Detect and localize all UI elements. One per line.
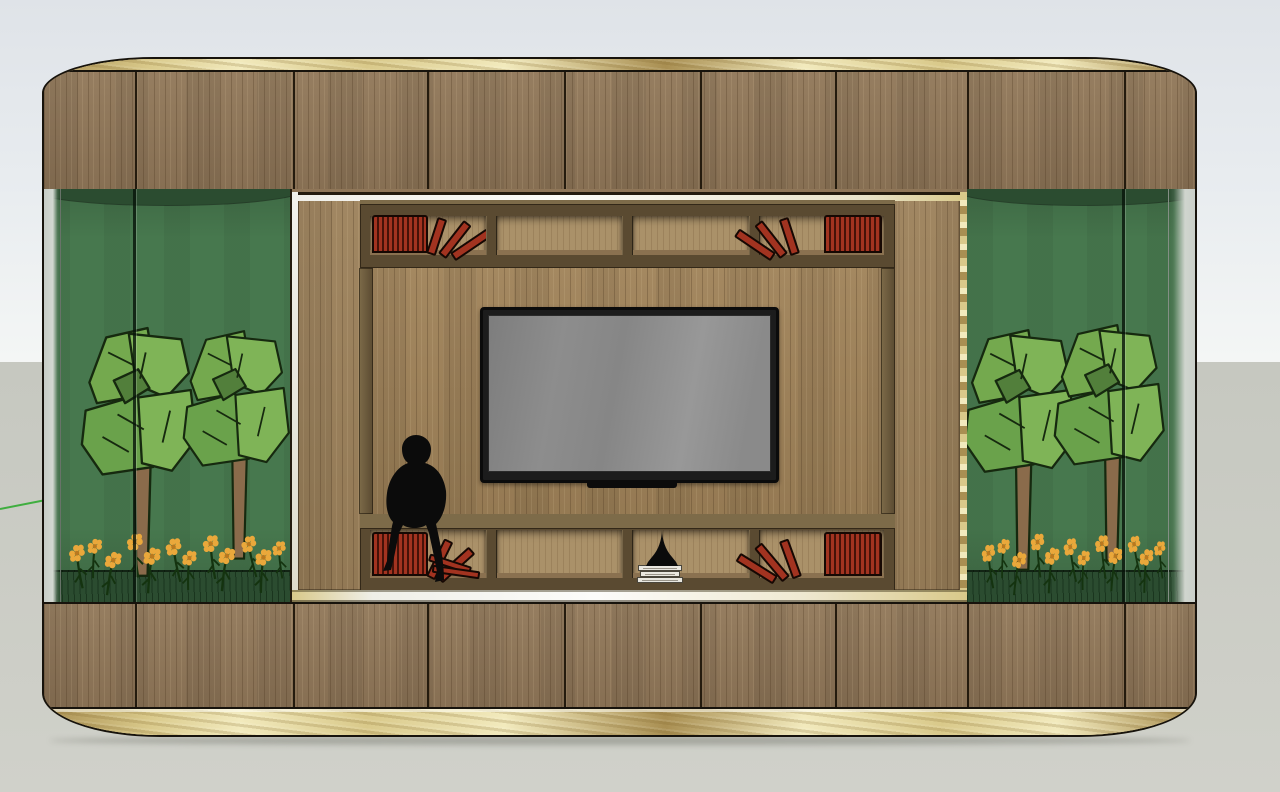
niche-frame-left xyxy=(292,192,298,590)
upper-wood-panels[interactable] xyxy=(44,72,1195,189)
spire-sculpture[interactable] xyxy=(644,530,680,567)
panel-seam xyxy=(967,72,969,189)
terrarium-ceiling xyxy=(44,189,292,205)
gold-trim-top[interactable] xyxy=(44,59,1195,72)
panel-seam xyxy=(427,604,429,707)
panel-seam xyxy=(700,604,702,707)
shelf-floor xyxy=(633,250,749,255)
terrarium-left[interactable] xyxy=(44,189,292,602)
niche-sill xyxy=(292,590,967,602)
lower-wood-panels[interactable] xyxy=(44,602,1195,707)
gold-trim-bottom[interactable] xyxy=(44,707,1195,737)
display-zone xyxy=(44,189,1195,602)
panel-seam xyxy=(835,72,837,189)
wall-unit[interactable] xyxy=(42,57,1197,737)
niche-frame-right xyxy=(960,192,967,590)
book-block[interactable] xyxy=(824,215,882,253)
panel-seam xyxy=(135,604,137,707)
shelf-floor xyxy=(497,573,622,578)
tv[interactable] xyxy=(480,307,779,483)
terrarium-right[interactable] xyxy=(967,189,1197,602)
panel-seam xyxy=(427,72,429,189)
viewport xyxy=(0,0,1280,792)
book-block[interactable] xyxy=(372,215,428,253)
white-book-stack[interactable] xyxy=(636,565,684,585)
shelf-divider xyxy=(622,216,633,255)
book-block[interactable] xyxy=(824,532,882,576)
stacked-book[interactable] xyxy=(637,577,683,583)
glass-mullion xyxy=(133,189,136,602)
panel-seam xyxy=(135,72,137,189)
drop-shadow xyxy=(50,736,1190,745)
panel-seam xyxy=(1124,72,1126,189)
tv-stand xyxy=(587,481,677,488)
glass-edge xyxy=(44,189,61,602)
compartment[interactable] xyxy=(760,216,884,255)
shelf-side-frame xyxy=(359,268,373,514)
panel-seam xyxy=(293,604,295,707)
terrarium-ceiling xyxy=(967,189,1197,205)
panel-seam xyxy=(564,604,566,707)
shelf-divider xyxy=(486,216,497,255)
compartment[interactable] xyxy=(760,530,884,578)
shelf-divider xyxy=(622,530,633,578)
shelf-side-frame xyxy=(881,268,895,514)
panel-seam xyxy=(1124,604,1126,707)
shelf-divider xyxy=(486,530,497,578)
glass-edge xyxy=(1168,189,1197,602)
panel-seam xyxy=(564,72,566,189)
glass-mullion xyxy=(1122,189,1125,602)
flower-bed[interactable] xyxy=(54,515,290,599)
flower-bed[interactable] xyxy=(969,515,1169,599)
tv-niche[interactable] xyxy=(292,189,967,602)
panel-seam xyxy=(293,72,295,189)
compartment[interactable] xyxy=(370,216,486,255)
tv-screen xyxy=(488,315,771,472)
compartment[interactable] xyxy=(497,216,622,255)
ape-figure-sculpture[interactable] xyxy=(377,429,457,584)
compartment[interactable] xyxy=(633,216,749,255)
shelf-row-top[interactable] xyxy=(360,200,895,268)
panel-seam xyxy=(700,72,702,189)
shelf-floor xyxy=(497,250,622,255)
panel-seam xyxy=(967,604,969,707)
compartment[interactable] xyxy=(497,530,622,578)
panel-seam xyxy=(835,604,837,707)
